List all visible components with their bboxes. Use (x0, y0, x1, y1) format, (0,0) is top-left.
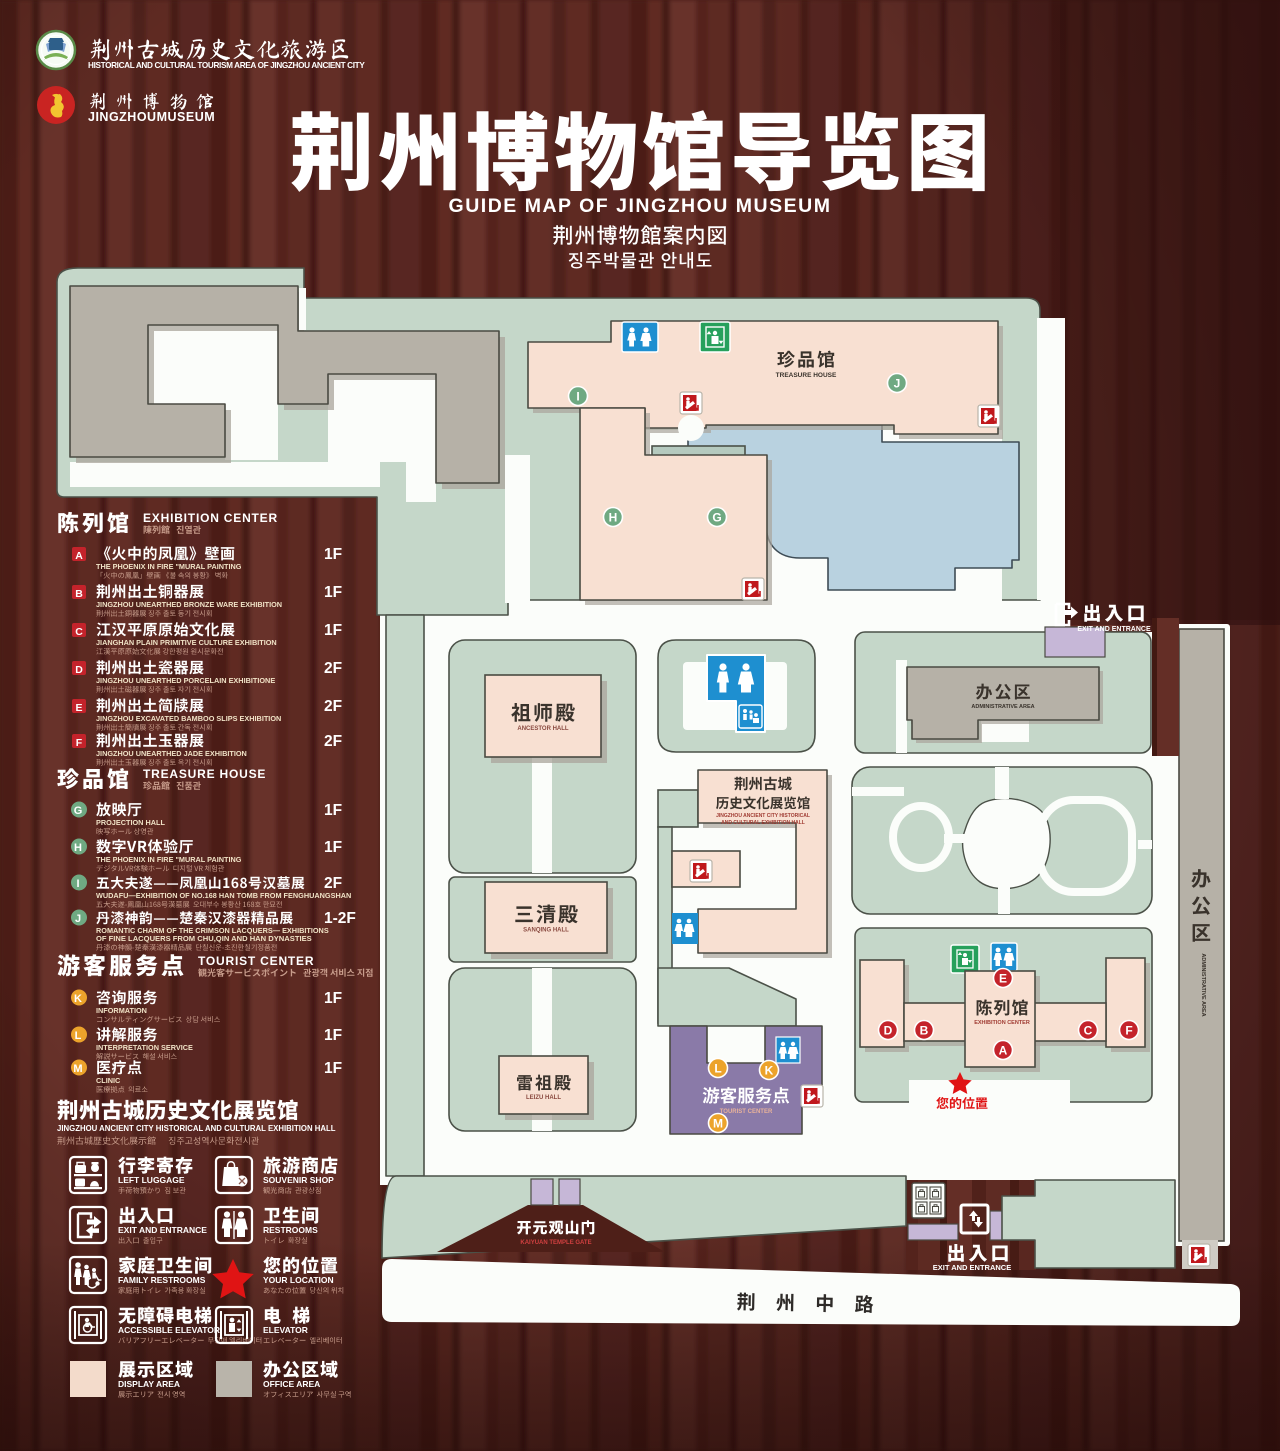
svg-text:JIANGHAN PLAIN PRIMITIVE CULTU: JIANGHAN PLAIN PRIMITIVE CULTURE EXHIBIT… (96, 638, 277, 647)
svg-text:1F: 1F (324, 990, 342, 1007)
svg-text:EXHIBITION CENTER: EXHIBITION CENTER (974, 1020, 1030, 1026)
svg-text:K: K (765, 1063, 774, 1077)
svg-text:M: M (713, 1116, 723, 1130)
svg-text:2F: 2F (324, 698, 342, 715)
svg-text:ACCESSIBLE ELEVATOR: ACCESSIBLE ELEVATOR (118, 1325, 220, 1335)
svg-text:TREASURE HOUSE: TREASURE HOUSE (143, 767, 266, 781)
svg-text:I: I (76, 878, 79, 890)
svg-text:EXIT AND ENTRANCE: EXIT AND ENTRANCE (1077, 626, 1151, 633)
svg-text:2F: 2F (324, 660, 342, 677)
svg-text:A: A (999, 1043, 1008, 1057)
svg-text:SOUVENIR SHOP: SOUVENIR SHOP (263, 1175, 334, 1185)
svg-text:J: J (75, 913, 81, 925)
svg-text:JINGZHOU ANCIENT CITY HISTORIC: JINGZHOU ANCIENT CITY HISTORICAL AND CUL… (57, 1124, 336, 1133)
svg-text:WUDAFU—EXHIBITION OF NO.168 HA: WUDAFU—EXHIBITION OF NO.168 HAN TOMB FRO… (96, 891, 351, 900)
svg-text:THE PHOENIX IN FIRE "MURAL PAI: THE PHOENIX IN FIRE "MURAL PAINTING (96, 855, 242, 864)
svg-text:KAIYUAN TEMPLE GATE: KAIYUAN TEMPLE GATE (520, 1240, 591, 1246)
svg-text:INFORMATION: INFORMATION (96, 1006, 147, 1015)
svg-text:ADMINISTRATIVE AREA: ADMINISTRATIVE AREA (971, 704, 1034, 710)
svg-text:1F: 1F (324, 546, 342, 563)
svg-text:1F: 1F (324, 1027, 342, 1044)
svg-text:ELEVATOR: ELEVATOR (263, 1325, 308, 1335)
svg-text:OFFICE AREA: OFFICE AREA (263, 1379, 320, 1389)
svg-text:1-2F: 1-2F (324, 910, 356, 927)
svg-text:B: B (920, 1023, 929, 1037)
svg-text:1F: 1F (324, 802, 342, 819)
svg-text:EXIT AND ENTRANCE: EXIT AND ENTRANCE (933, 1263, 1011, 1272)
svg-text:2F: 2F (324, 733, 342, 750)
svg-text:JINGZHOU UNEARTHED PORCELAIN E: JINGZHOU UNEARTHED PORCELAIN EXHIBITIONE (96, 676, 275, 685)
svg-text:F: F (1125, 1023, 1132, 1037)
svg-text:1F: 1F (324, 839, 342, 856)
svg-text:1F: 1F (324, 584, 342, 601)
svg-text:D: D (884, 1023, 893, 1037)
svg-text:E: E (75, 702, 82, 714)
svg-text:E: E (999, 971, 1007, 985)
svg-text:JINGZHOU UNEARTHED JADE EXHIBI: JINGZHOU UNEARTHED JADE EXHIBITION (96, 749, 247, 758)
svg-text:D: D (75, 664, 83, 676)
svg-text:JINGZHOU UNEARTHED BRONZE WARE: JINGZHOU UNEARTHED BRONZE WARE EXHIBITIO… (96, 600, 282, 609)
svg-text:CLINIC: CLINIC (96, 1076, 121, 1085)
svg-text:J: J (894, 376, 901, 390)
svg-text:TREASURE HOUSE: TREASURE HOUSE (776, 372, 837, 379)
svg-text:1F: 1F (324, 622, 342, 639)
svg-text:A: A (75, 550, 83, 562)
svg-text:1F: 1F (324, 1060, 342, 1077)
svg-text:L: L (75, 1030, 82, 1042)
svg-text:H: H (74, 842, 82, 854)
svg-text:B: B (75, 588, 83, 600)
svg-text:FAMILY RESTROOMS: FAMILY RESTROOMS (118, 1275, 206, 1285)
svg-text:PROJECTION HALL: PROJECTION HALL (96, 818, 165, 827)
svg-text:H: H (609, 510, 618, 524)
svg-text:ADMINISTRATIVE AREA: ADMINISTRATIVE AREA (1200, 953, 1206, 1016)
svg-text:AND CULTURAL EXHIBITION HALL: AND CULTURAL EXHIBITION HALL (721, 820, 805, 826)
svg-text:G: G (712, 510, 721, 524)
svg-text:SANQING HALL: SANQING HALL (523, 928, 569, 934)
svg-text:LEIZU HALL: LEIZU HALL (526, 1095, 561, 1101)
svg-text:G: G (74, 805, 83, 817)
svg-text:F: F (76, 737, 83, 749)
svg-text:OF FINE LACQUERS FROM CHU,QIN: OF FINE LACQUERS FROM CHU,QIN AND HAN DY… (96, 934, 312, 943)
svg-text:TOURIST CENTER: TOURIST CENTER (198, 954, 314, 968)
svg-text:I: I (576, 389, 579, 403)
svg-text:DISPLAY AREA: DISPLAY AREA (118, 1379, 180, 1389)
svg-text:EXHIBITION CENTER: EXHIBITION CENTER (143, 511, 278, 525)
svg-text:2F: 2F (324, 875, 342, 892)
svg-text:LEFT LUGGAGE: LEFT LUGGAGE (118, 1175, 185, 1185)
svg-text:GUIDE MAP OF JINGZHOU MUSEUM: GUIDE MAP OF JINGZHOU MUSEUM (449, 195, 832, 217)
svg-text:THE PHOENIX IN FIRE "MURAL PAI: THE PHOENIX IN FIRE "MURAL PAINTING (96, 562, 242, 571)
svg-text:TOURIST CENTER: TOURIST CENTER (720, 1109, 773, 1115)
svg-text:ANCESTOR HALL: ANCESTOR HALL (517, 726, 569, 732)
svg-text:L: L (714, 1061, 721, 1075)
svg-text:JINGZHOU ANCIENT CITY HISTORIC: JINGZHOU ANCIENT CITY HISTORICAL (716, 813, 810, 819)
svg-text:K: K (74, 993, 82, 1005)
svg-text:JINGZHOUMUSEUM: JINGZHOUMUSEUM (88, 110, 215, 124)
svg-text:C: C (75, 626, 83, 638)
svg-text:M: M (73, 1063, 82, 1075)
svg-text:RESTROOMS: RESTROOMS (263, 1225, 318, 1235)
svg-text:C: C (1084, 1023, 1093, 1037)
svg-text:INTERPRETATION SERVICE: INTERPRETATION SERVICE (96, 1043, 193, 1052)
svg-text:EXIT AND ENTRANCE: EXIT AND ENTRANCE (118, 1225, 207, 1235)
svg-text:JINGZHOU EXCAVATED BAMBOO SLIP: JINGZHOU EXCAVATED BAMBOO SLIPS EXHIBITI… (96, 714, 281, 723)
svg-text:HISTORICAL AND CULTURAL TOURIS: HISTORICAL AND CULTURAL TOURISM AREA OF … (88, 61, 365, 70)
svg-text:YOUR LOCATION: YOUR LOCATION (263, 1275, 334, 1285)
